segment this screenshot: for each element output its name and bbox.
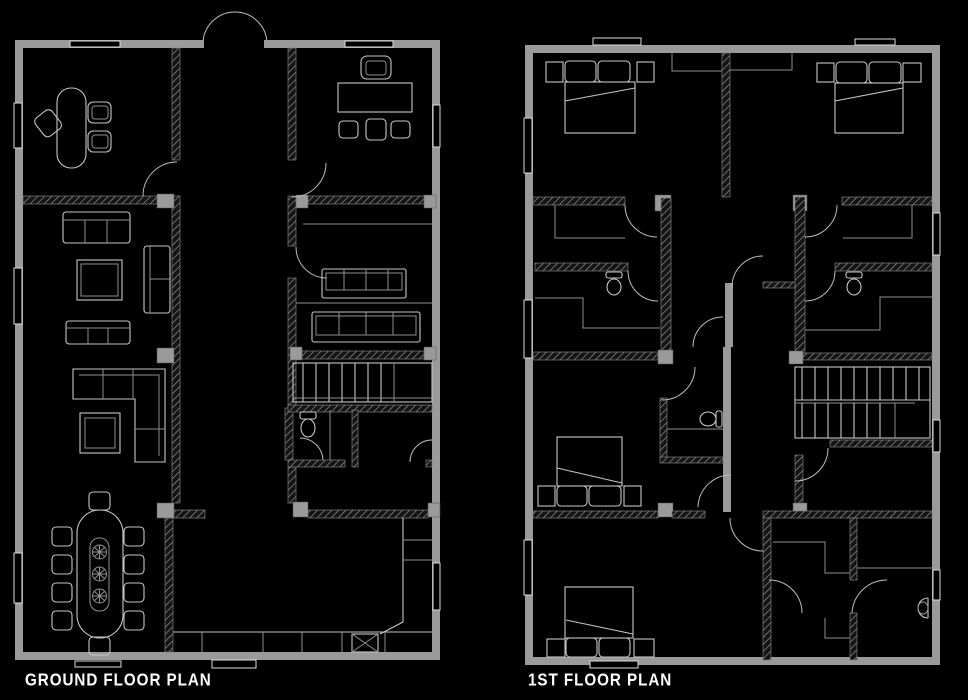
ff-staircase	[795, 367, 930, 438]
gf-staircase	[293, 363, 432, 402]
gf-l-shaped-sofa	[73, 369, 165, 462]
gf-kitchen-counter	[173, 518, 432, 652]
ff-bed-bottom-left-upper	[538, 437, 641, 506]
gf-dining-table	[52, 492, 144, 655]
ff-bed-top-right	[817, 62, 921, 133]
ff-interior-walls	[533, 53, 932, 660]
gf-outer-walls	[15, 40, 440, 660]
gf-office-desk	[33, 88, 111, 168]
first-floor-plan	[524, 38, 940, 668]
ff-wash-basin	[918, 598, 928, 618]
floor-plan-drawing	[0, 0, 968, 700]
gf-living-room-furniture	[63, 212, 170, 344]
floor-plan-sheet: GROUND FLOOR PLAN 1ST FLOOR PLAN	[0, 0, 968, 700]
gf-meeting-table	[338, 56, 412, 140]
ff-toilet-left	[606, 272, 622, 295]
gf-dining-plates	[93, 545, 107, 603]
ground-floor-plan	[14, 12, 440, 668]
ff-closet-lines	[535, 53, 932, 638]
first-floor-plan-label: 1ST FLOOR PLAN	[528, 671, 672, 691]
gf-toilet	[300, 412, 316, 437]
gf-wall-benches	[312, 269, 420, 342]
ff-toilet-bathroom	[700, 411, 722, 427]
ff-bed-bottom-left-lower	[547, 587, 654, 657]
gf-appliance-box	[352, 634, 378, 652]
ff-toilet-right	[846, 272, 862, 295]
ground-floor-plan-label: GROUND FLOOR PLAN	[25, 671, 212, 691]
ff-bed-top-left	[546, 61, 654, 133]
gf-entrance-double-door	[200, 12, 268, 48]
